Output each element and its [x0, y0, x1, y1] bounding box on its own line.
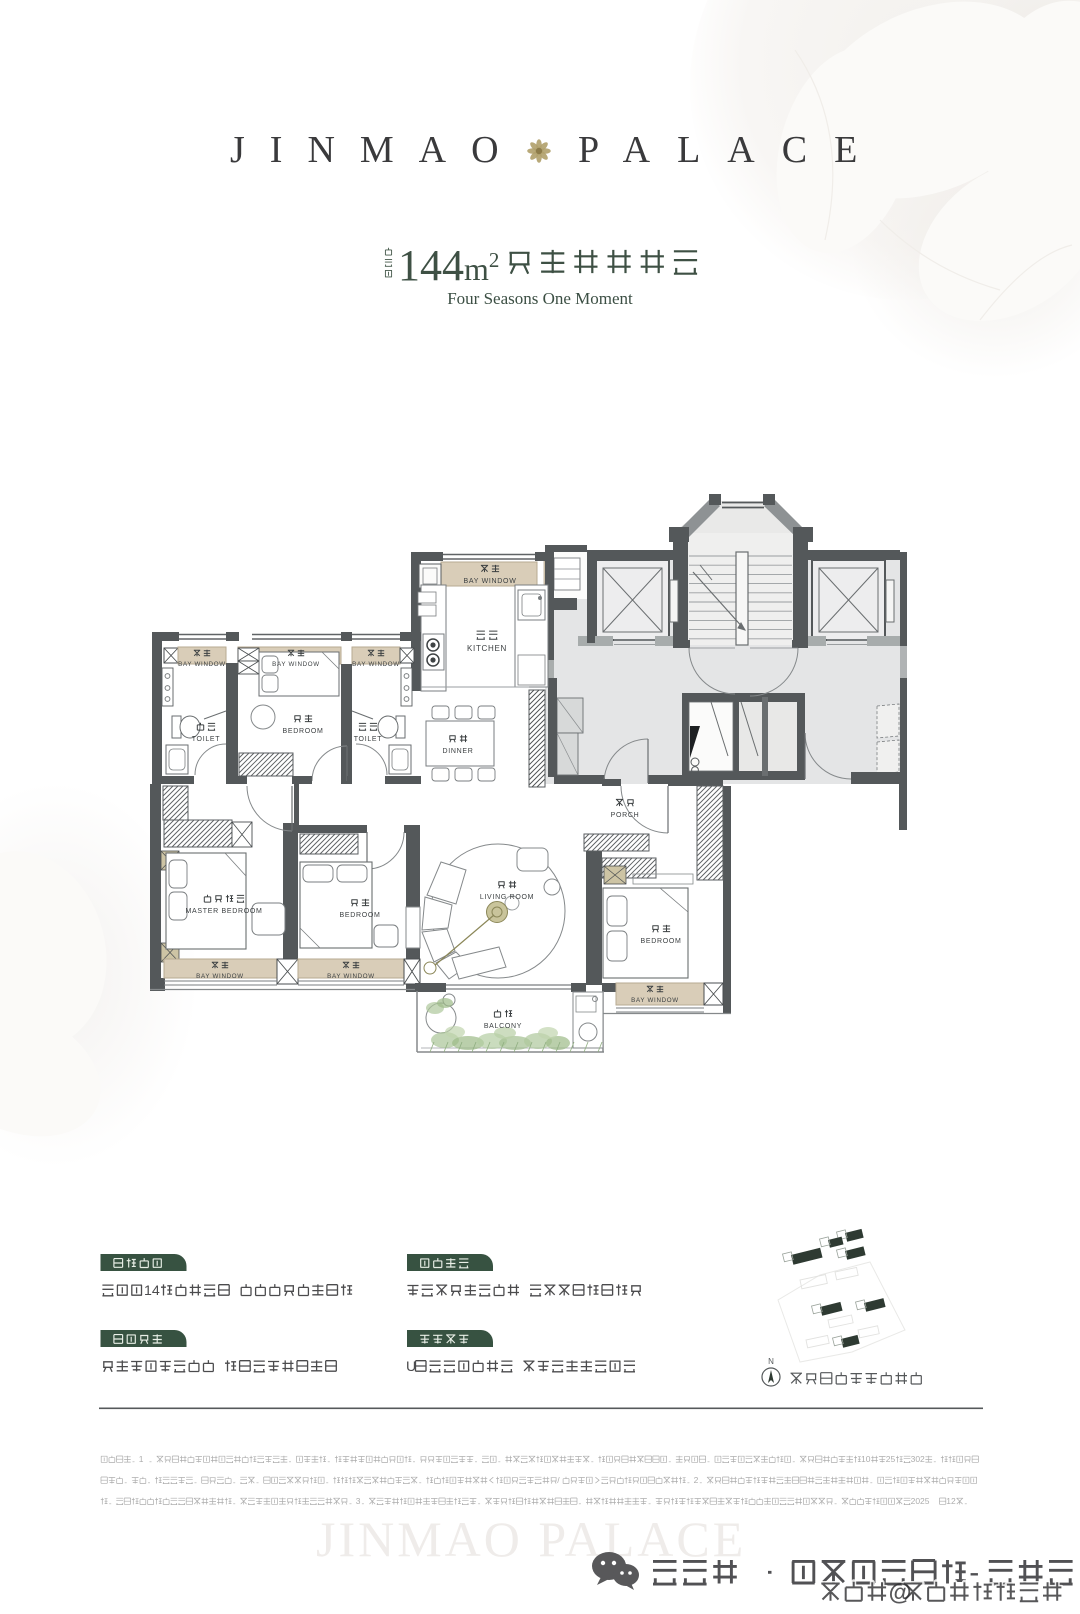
svg-text:DINNER: DINNER	[442, 748, 473, 755]
svg-text:3: 3	[356, 1496, 361, 1506]
svg-text:LIVING ROOM: LIVING ROOM	[480, 894, 534, 901]
svg-text:TOILET: TOILET	[354, 736, 383, 743]
svg-text:302: 302	[911, 1454, 925, 1464]
svg-text:BAY WINDOW: BAY WINDOW	[352, 661, 400, 668]
svg-text:BAY WINDOW: BAY WINDOW	[196, 973, 244, 980]
svg-text:N: N	[768, 1357, 774, 1366]
svg-text:BEDROOM: BEDROOM	[282, 728, 323, 735]
svg-text:BAY WINDOW: BAY WINDOW	[178, 661, 226, 668]
svg-text:MASTER BEDROOM: MASTER BEDROOM	[185, 908, 262, 915]
svg-text:1: 1	[139, 1454, 144, 1464]
svg-text:BALCONY: BALCONY	[484, 1023, 522, 1030]
svg-text:BAY WINDOW: BAY WINDOW	[327, 973, 375, 980]
svg-text:U: U	[406, 1359, 416, 1375]
svg-text:10: 10	[861, 1454, 871, 1464]
svg-text:TOILET: TOILET	[192, 736, 221, 743]
svg-text:BAY WINDOW: BAY WINDOW	[272, 661, 320, 668]
svg-text:KITCHEN: KITCHEN	[467, 644, 507, 653]
svg-text:PORCH: PORCH	[611, 812, 640, 819]
svg-text:2025: 2025	[911, 1496, 930, 1506]
svg-text:14: 14	[144, 1283, 160, 1299]
svg-text:12: 12	[946, 1496, 956, 1506]
svg-text:BAY WINDOW: BAY WINDOW	[631, 997, 679, 1004]
svg-text:2: 2	[694, 1475, 699, 1485]
svg-text:/: /	[557, 1475, 560, 1485]
svg-text:BAY WINDOW: BAY WINDOW	[463, 578, 516, 585]
svg-text:BEDROOM: BEDROOM	[339, 912, 380, 919]
svg-text:@: @	[889, 1579, 912, 1605]
svg-text:BEDROOM: BEDROOM	[640, 938, 681, 945]
svg-text:25: 25	[886, 1454, 896, 1464]
